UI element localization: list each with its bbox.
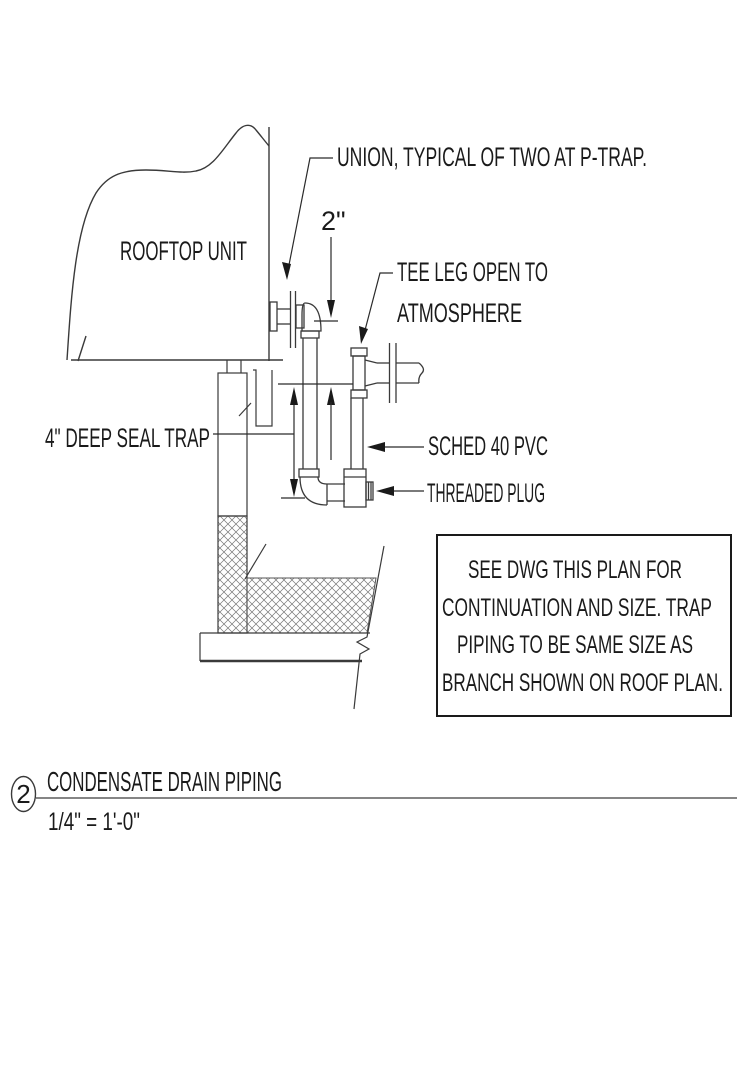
tee-branch-taper-bottom	[365, 383, 377, 386]
tee-leg-label-line2: ATMOSPHERE	[397, 298, 522, 328]
plug-leader-arrow	[376, 486, 394, 496]
tee-bottom-hub	[351, 390, 367, 398]
dim4-arrow-down	[290, 479, 298, 497]
note-line-1: SEE DWG THIS PLAN FOR	[468, 556, 682, 584]
rooftop-unit-label: ROOFTOP UNIT	[120, 236, 247, 266]
trap-elbow-inner	[318, 477, 327, 484]
base-line-end-tick	[78, 336, 86, 361]
deep-seal-trap-label: 4" DEEP SEAL TRAP	[45, 423, 210, 453]
pvc-leader-arrow	[367, 442, 385, 452]
elbow-down	[302, 303, 321, 331]
tee-leg-label-line1: TEE LEG OPEN TO	[397, 257, 548, 287]
detail-scale: 1/4" = 1'-0"	[48, 808, 140, 836]
dimensions	[213, 158, 424, 498]
trap-elbow-outer	[300, 477, 327, 505]
union-leader-arrow	[282, 262, 291, 280]
tee-leader-arrow	[359, 326, 368, 344]
trap-elbow-hub	[299, 469, 319, 477]
roof-insulation-hatched	[247, 578, 376, 633]
union-callout-label: UNION, TYPICAL OF TWO AT P-TRAP.	[337, 142, 647, 172]
note-line-4: BRANCH SHOWN ON ROOF PLAN.	[442, 669, 723, 697]
threaded-plug-label: THREADED PLUG	[427, 478, 545, 508]
tee-top-hub-open	[351, 348, 367, 356]
cant-strip-line	[245, 544, 266, 579]
curb-flashing-diagonal	[239, 403, 251, 416]
curb-hatched	[218, 516, 247, 633]
elbow-hub	[301, 331, 319, 338]
drawing-sheet: ROOFTOP UNIT	[0, 0, 753, 1092]
curb-upper	[218, 373, 247, 516]
unit-outlet-flange	[270, 302, 277, 331]
dim2-arrow-down	[327, 300, 335, 318]
tee-leader	[364, 273, 393, 334]
tee-branch-taper-top	[365, 360, 377, 363]
pipe-break-end	[419, 363, 424, 383]
detail-number: 2	[16, 779, 30, 809]
note-line-3: PIPING TO BE SAME SIZE AS	[457, 631, 693, 659]
sched-40-pvc-label: SCHED 40 PVC	[428, 431, 548, 461]
threaded-plug-body	[366, 482, 373, 500]
flashing-channel	[253, 370, 272, 426]
dim4-arrow-up	[290, 387, 298, 405]
tee-body	[353, 356, 365, 390]
condensate-drain-piping-detail: ROOFTOP UNIT	[0, 0, 753, 1092]
detail-title: CONDENSATE DRAIN PIPING	[47, 766, 282, 797]
dim-2in-label: 2"	[321, 206, 346, 236]
note-line-2: CONTINUATION AND SIZE. TRAP	[442, 594, 712, 622]
trap-tee-body	[344, 469, 366, 507]
roof-curb-assembly	[200, 360, 384, 709]
